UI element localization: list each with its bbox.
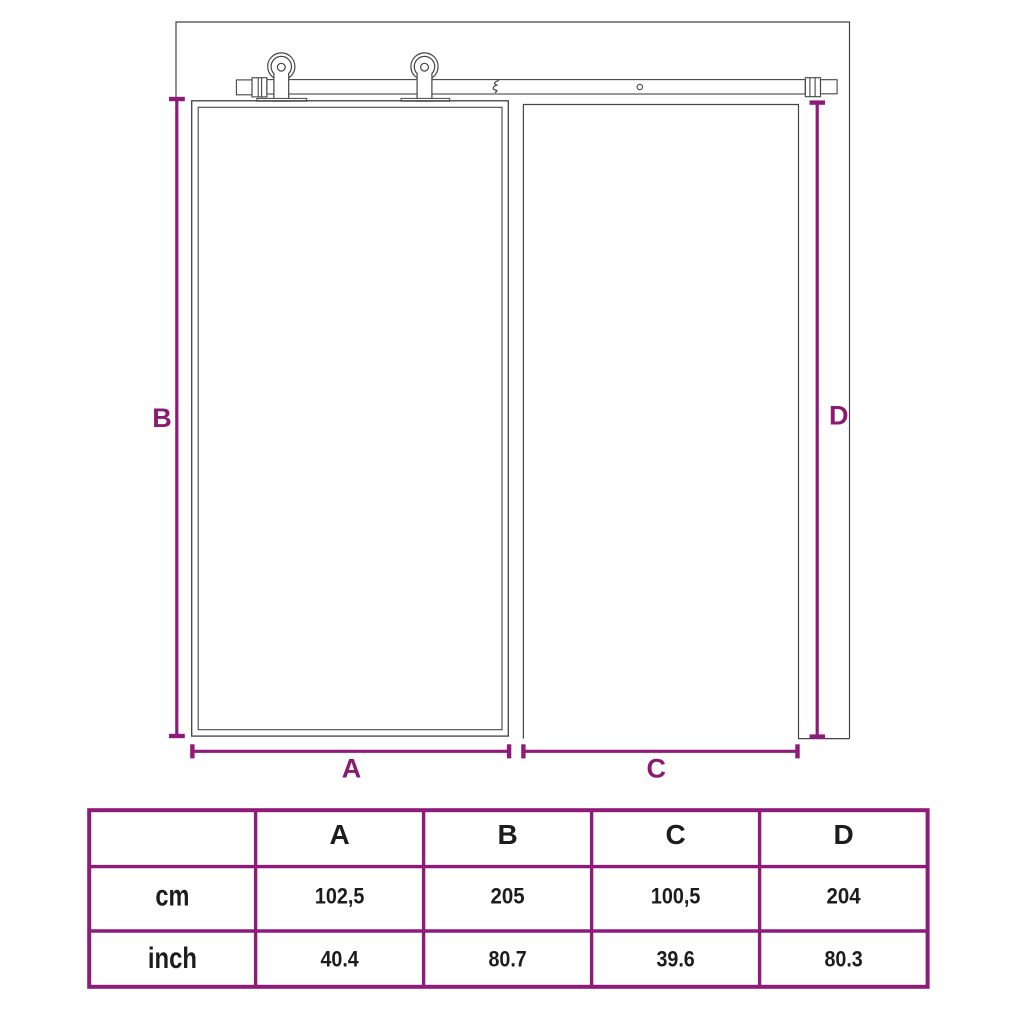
svg-text:A: A	[342, 754, 362, 784]
svg-text:cm: cm	[155, 880, 189, 913]
svg-text:D: D	[833, 819, 853, 850]
svg-text:B: B	[152, 403, 172, 433]
svg-text:40.4: 40.4	[320, 947, 359, 972]
svg-text:39.6: 39.6	[656, 947, 694, 972]
svg-text:80.3: 80.3	[824, 947, 862, 972]
svg-text:inch: inch	[148, 942, 197, 975]
svg-text:B: B	[497, 819, 517, 850]
svg-text:100,5: 100,5	[651, 884, 701, 909]
svg-text:D: D	[829, 400, 849, 430]
svg-text:C: C	[665, 819, 685, 850]
svg-text:204: 204	[827, 884, 862, 909]
svg-text:80.7: 80.7	[488, 947, 526, 972]
svg-text:C: C	[646, 754, 666, 784]
svg-text:102,5: 102,5	[315, 884, 365, 909]
svg-text:205: 205	[491, 884, 525, 909]
svg-text:A: A	[329, 819, 349, 850]
